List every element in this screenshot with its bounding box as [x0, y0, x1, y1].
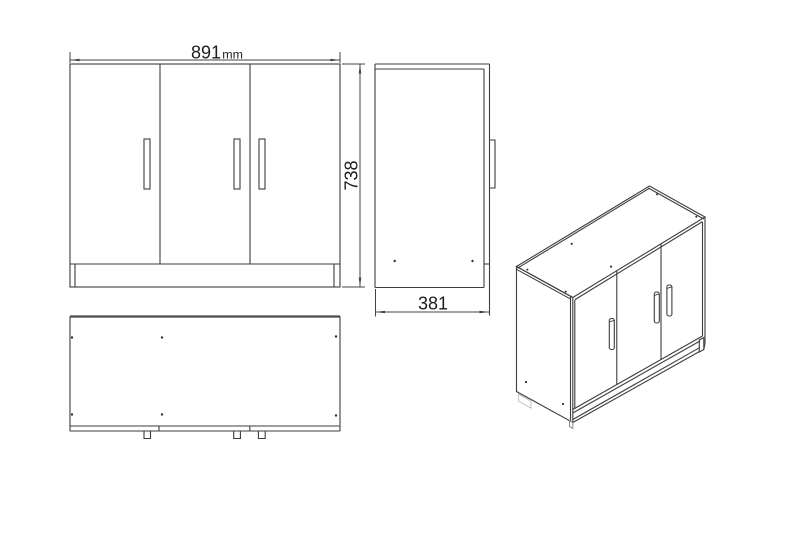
- svg-text:mm: mm: [222, 47, 243, 61]
- svg-text:891: 891: [191, 42, 221, 62]
- svg-text:738: 738: [342, 160, 362, 190]
- svg-text:381: 381: [418, 294, 448, 314]
